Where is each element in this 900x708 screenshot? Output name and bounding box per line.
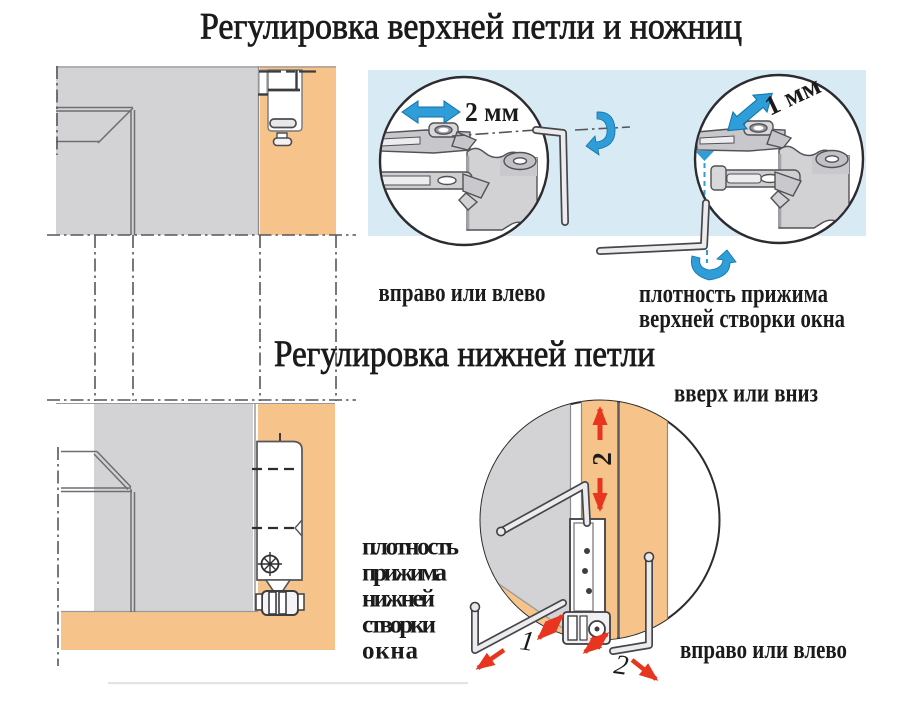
svg-text:Регулировка верхней петли и но: Регулировка верхней петли и ножниц [200,7,742,48]
svg-text:2: 2 [587,452,617,466]
svg-text:2: 2 [612,649,630,682]
svg-text:верхней створки окна: верхней створки окна [639,304,845,333]
svg-text:1: 1 [518,625,536,658]
svg-text:окна: окна [362,638,419,665]
svg-text:нижней: нижней [362,586,435,613]
svg-text:створки: створки [362,612,436,639]
svg-text:вправо или влево: вправо или влево [680,635,847,664]
svg-text:вправо или влево: вправо или влево [379,278,546,307]
svg-text:2 мм: 2 мм [465,97,519,127]
svg-text:плотность: плотность [362,534,459,561]
svg-text:Регулировка нижней петли: Регулировка нижней петли [274,334,655,375]
svg-text:прижима: прижима [362,560,448,587]
svg-text:вверх или вниз: вверх или вниз [674,379,818,408]
